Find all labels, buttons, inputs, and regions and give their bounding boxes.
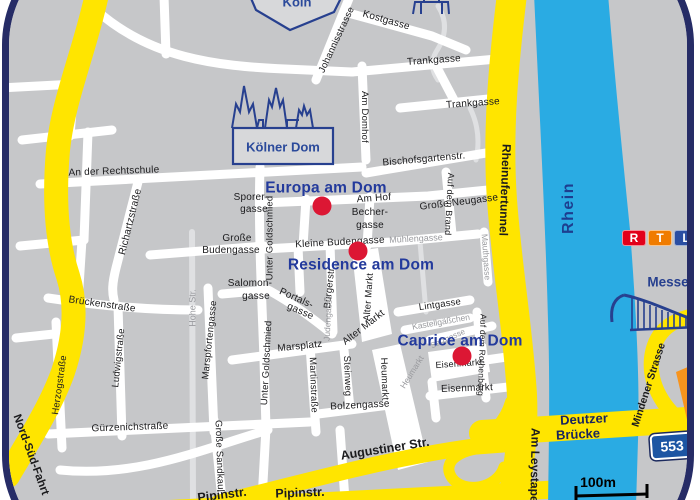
rtl-logo: R T L [622,230,694,246]
map-label-br-cke: Brücke [556,426,601,441]
map-inner: R T L 553 100m JohannisstrasseKostgasseT… [2,0,694,500]
map-screenshot: R T L 553 100m JohannisstrasseKostgasseT… [0,0,700,500]
map-label-eisenmarkt: Eisenmarkt [441,383,493,395]
map-label-am-leystapel: Am Leystapel [528,428,541,500]
scale-label: 100m [580,475,616,489]
map-label-gro-e: Große [222,234,251,244]
map-frame: R T L 553 100m JohannisstrasseKostgasseT… [2,0,694,500]
route-sign-553: 553 [649,432,694,461]
map-label-hohe-str: Hohe Str. [189,289,198,327]
hotel-label-residence-am-dom: Residence am Dom [288,257,434,273]
map-label-rheinufertunnel: Rheinufertunnel [497,144,512,236]
rtl-letter-l: L [674,230,694,246]
map-label-gro-e-sandkaul: Große Sandkaul [213,420,225,492]
map-label-heumarkt: Heumarkt [379,357,390,400]
rtl-letter-t: T [648,230,672,246]
hotel-label-caprice-am-dom: Caprice am Dom [397,333,522,349]
map-label-auf-dem-brand: Auf dem Brand [443,172,455,235]
rtl-letter-r: R [622,230,646,246]
map-label-k-ln: Köln [283,0,312,9]
hotel-marker-europa-am-dom [313,197,332,216]
map-label-rhein: Rhein [561,182,577,234]
map-label-sporer: Sporer- [234,193,269,203]
map-label-salomon: Salomon- [228,279,272,289]
map-label-unter-goldschmied: Unter Goldschmied [265,196,275,281]
map-label-gasse: gasse [356,221,384,231]
map-label-k-lner-dom: Kölner Dom [246,141,320,154]
map-label-pipinstr: Pipinstr. [275,486,325,500]
map-label-deutzer: Deutzer [560,411,608,426]
map-label-am-domhof: Am Domhof [359,91,369,143]
map-label-becher: Becher- [352,208,388,218]
map-label-gasse: gasse [242,292,270,302]
map-label-martinstra-e: Martinstraße [307,357,318,413]
map-label-mauthgasse: Mauthgasse [480,234,492,281]
map-label-budengasse: Budengasse [202,246,260,256]
map-label-steinweg: Steinweg [342,356,353,397]
map-label-messe: Messe [647,275,688,289]
hotel-marker-caprice-am-dom [453,347,472,366]
hotel-label-europa-am-dom: Europa am Dom [265,180,386,196]
map-label-judengasse: Judengasse [323,295,334,341]
